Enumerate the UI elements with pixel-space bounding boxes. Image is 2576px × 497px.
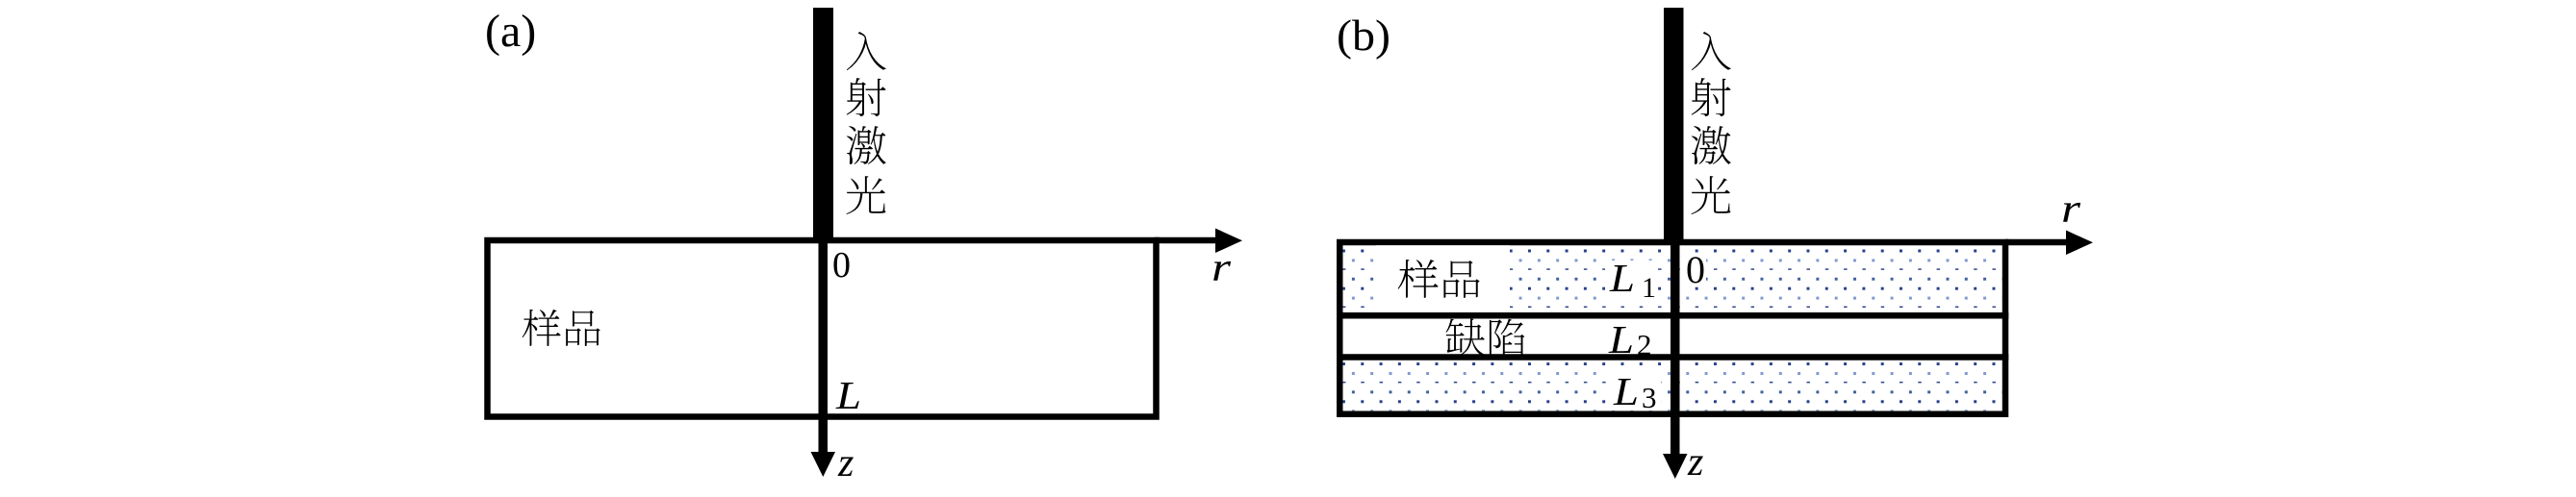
svg-text:(a): (a): [485, 6, 536, 57]
svg-text:r: r: [2061, 187, 2081, 232]
svg-text:L: L: [1608, 317, 1634, 361]
svg-text:3: 3: [1642, 381, 1657, 414]
svg-text:L: L: [835, 373, 861, 417]
svg-text:z: z: [1687, 440, 1703, 485]
svg-text:r: r: [1211, 246, 1232, 290]
svg-text:1: 1: [1642, 272, 1656, 304]
svg-text:(b): (b): [1337, 11, 1390, 60]
svg-text:L: L: [1613, 369, 1639, 413]
svg-text:z: z: [837, 441, 854, 485]
svg-text:L: L: [1609, 256, 1635, 300]
svg-text:0: 0: [1686, 248, 1705, 291]
svg-text:0: 0: [832, 245, 851, 286]
svg-text:2: 2: [1637, 328, 1652, 361]
